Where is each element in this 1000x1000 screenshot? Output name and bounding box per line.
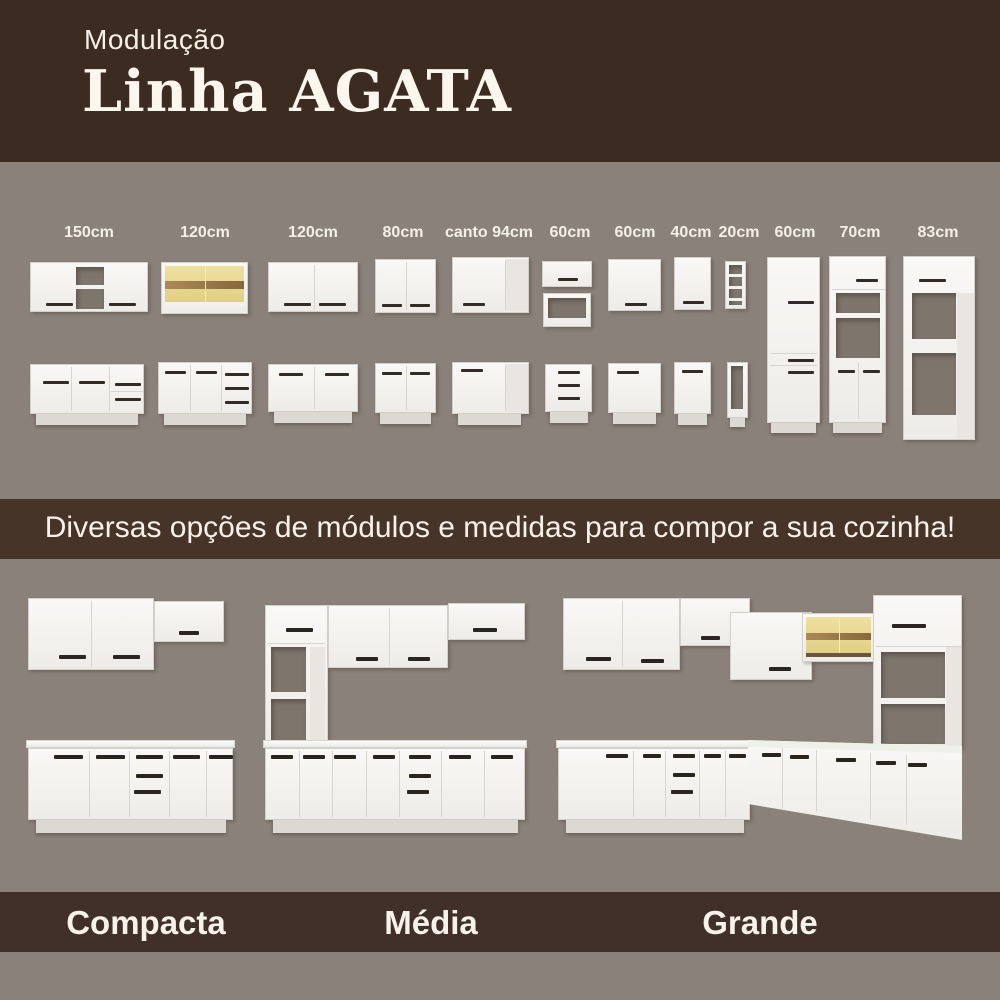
module-80cm-wall-cabinet [375, 259, 436, 313]
module-20cm-niche-plinth [730, 418, 745, 427]
media-countertop [263, 740, 527, 748]
kitchen-label-compacta: Compacta [46, 904, 246, 942]
module-60cm-drawer-base [545, 364, 592, 412]
module-150cm-wall-cabinet [30, 262, 148, 312]
grande-countertop-left [556, 740, 752, 748]
compacta-wall-cabinet-left [28, 598, 154, 670]
module-60cm-base-cabinet [608, 363, 661, 413]
module-150cm-base-cabinet [30, 364, 144, 414]
module-120cm-wall-cabinet [268, 262, 358, 312]
module-20cm-shelf-tower [725, 261, 746, 309]
module-60cm-base-plinth [613, 413, 656, 424]
module-60cm-flip-wall-cabinet [542, 261, 592, 287]
grande-base-run-right [748, 740, 962, 840]
poster: Modulação Linha AGATA 150cm 120cm 120cm … [0, 0, 1000, 1000]
banner-band: Diversas opções de módulos e medidas par… [0, 499, 1000, 559]
module-label-70cm: 70cm [815, 224, 905, 242]
module-120cm-base-cabinet [268, 364, 358, 412]
module-83cm-oven-frame [903, 256, 975, 440]
media-base-run [265, 748, 525, 820]
module-canto-base-plinth [458, 414, 521, 425]
media-tower [265, 605, 328, 742]
grande-plinth-left [566, 820, 744, 833]
header-kicker: Modulação [84, 24, 225, 56]
compacta-plinth [36, 820, 226, 833]
module-150cm-base-plinth [36, 414, 138, 425]
module-40cm-base-plinth [678, 414, 707, 425]
module-60cm-tall-cabinet [767, 257, 820, 423]
grande-wall-cabinet-corner [730, 612, 812, 680]
module-label-120cm-b: 120cm [268, 224, 358, 242]
footer-band: Compacta Média Grande [0, 892, 1000, 952]
banner-text: Diversas opções de módulos e medidas par… [0, 511, 1000, 545]
module-label-150cm: 150cm [44, 224, 134, 242]
media-wall-cabinet-right [448, 603, 525, 640]
module-40cm-base-cabinet [674, 362, 711, 414]
module-60cm-wall-cabinet [608, 259, 661, 311]
grande-base-run-left [558, 748, 750, 820]
module-40cm-wall-cabinet [674, 257, 711, 310]
kitchen-label-media: Média [331, 904, 531, 942]
grande-tall-tower [873, 595, 962, 748]
compacta-countertop [26, 740, 235, 748]
kitchen-label-grande: Grande [660, 904, 860, 942]
compacta-wall-cabinet-right [154, 601, 224, 642]
module-70cm-tower-plinth [833, 423, 882, 433]
header-band: Modulação Linha AGATA [0, 0, 1000, 162]
media-plinth [273, 820, 518, 833]
module-120cm-base-plinth-a [164, 414, 246, 425]
module-120cm-base-drawers [158, 362, 252, 414]
module-60cm-drawer-plinth [550, 412, 588, 423]
module-canto-94cm-base-cabinet [452, 362, 529, 414]
media-wall-cabinet [328, 605, 448, 668]
module-label-83cm: 83cm [893, 224, 983, 242]
page-title: Linha AGATA [82, 58, 512, 125]
module-120cm-base-plinth-b [274, 412, 352, 423]
grande-wood-glass-cabinet [802, 613, 875, 662]
module-20cm-open-niche [727, 362, 748, 418]
module-canto-94cm-wall-cabinet [452, 257, 529, 313]
module-label-120cm-a: 120cm [160, 224, 250, 242]
module-120cm-wood-wall-cabinet [161, 262, 248, 314]
module-70cm-oven-tower [829, 256, 886, 423]
grande-wall-cabinet-left [563, 598, 680, 670]
compacta-base-run [28, 748, 233, 820]
module-60cm-tall-plinth [771, 423, 816, 433]
module-60cm-open-box [543, 293, 591, 327]
module-80cm-base-cabinet [375, 363, 436, 413]
module-80cm-base-plinth [380, 413, 431, 424]
